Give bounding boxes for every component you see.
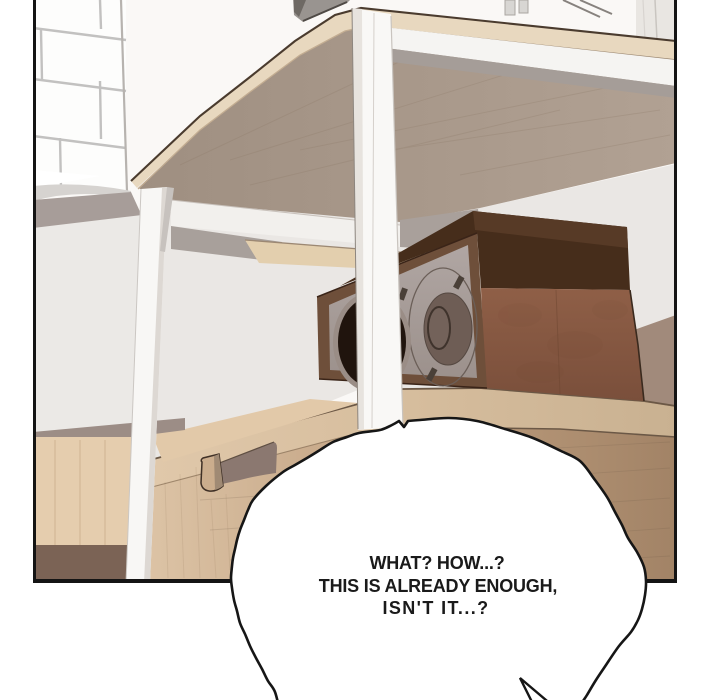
svg-text:ISN'T IT...?: ISN'T IT...? (382, 598, 489, 618)
svg-text:THIS IS ALREADY ENOUGH,: THIS IS ALREADY ENOUGH, (319, 576, 557, 596)
svg-text:WHAT? HOW...?: WHAT? HOW...? (369, 553, 504, 573)
